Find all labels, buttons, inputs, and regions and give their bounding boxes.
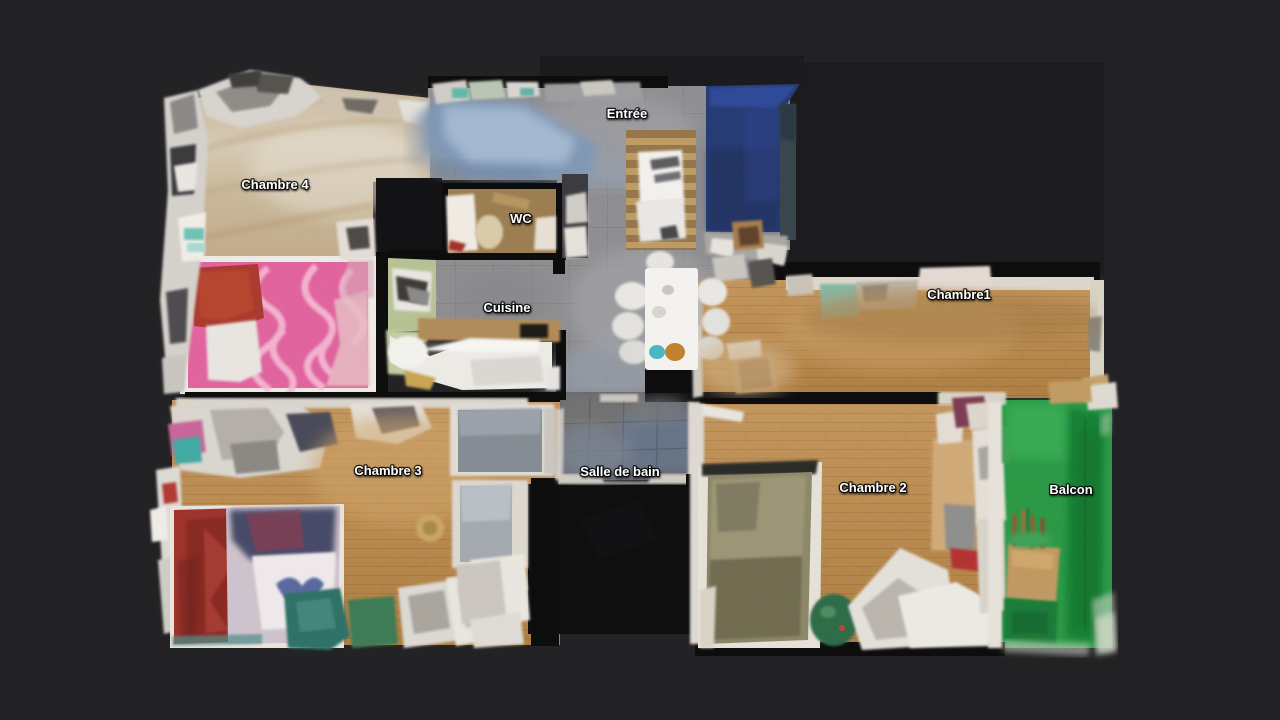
svg-text:Entrée: Entrée bbox=[607, 106, 647, 121]
svg-text:Chambre1: Chambre1 bbox=[927, 287, 991, 302]
svg-text:Balcon: Balcon bbox=[1049, 482, 1092, 497]
svg-text:WC: WC bbox=[510, 211, 532, 226]
svg-text:Chambre 4: Chambre 4 bbox=[241, 177, 309, 192]
svg-text:Chambre 2: Chambre 2 bbox=[839, 480, 906, 495]
svg-text:Salle de bain: Salle de bain bbox=[580, 464, 660, 479]
svg-text:Cuisine: Cuisine bbox=[484, 300, 531, 315]
svg-text:Chambre 3: Chambre 3 bbox=[354, 463, 421, 478]
